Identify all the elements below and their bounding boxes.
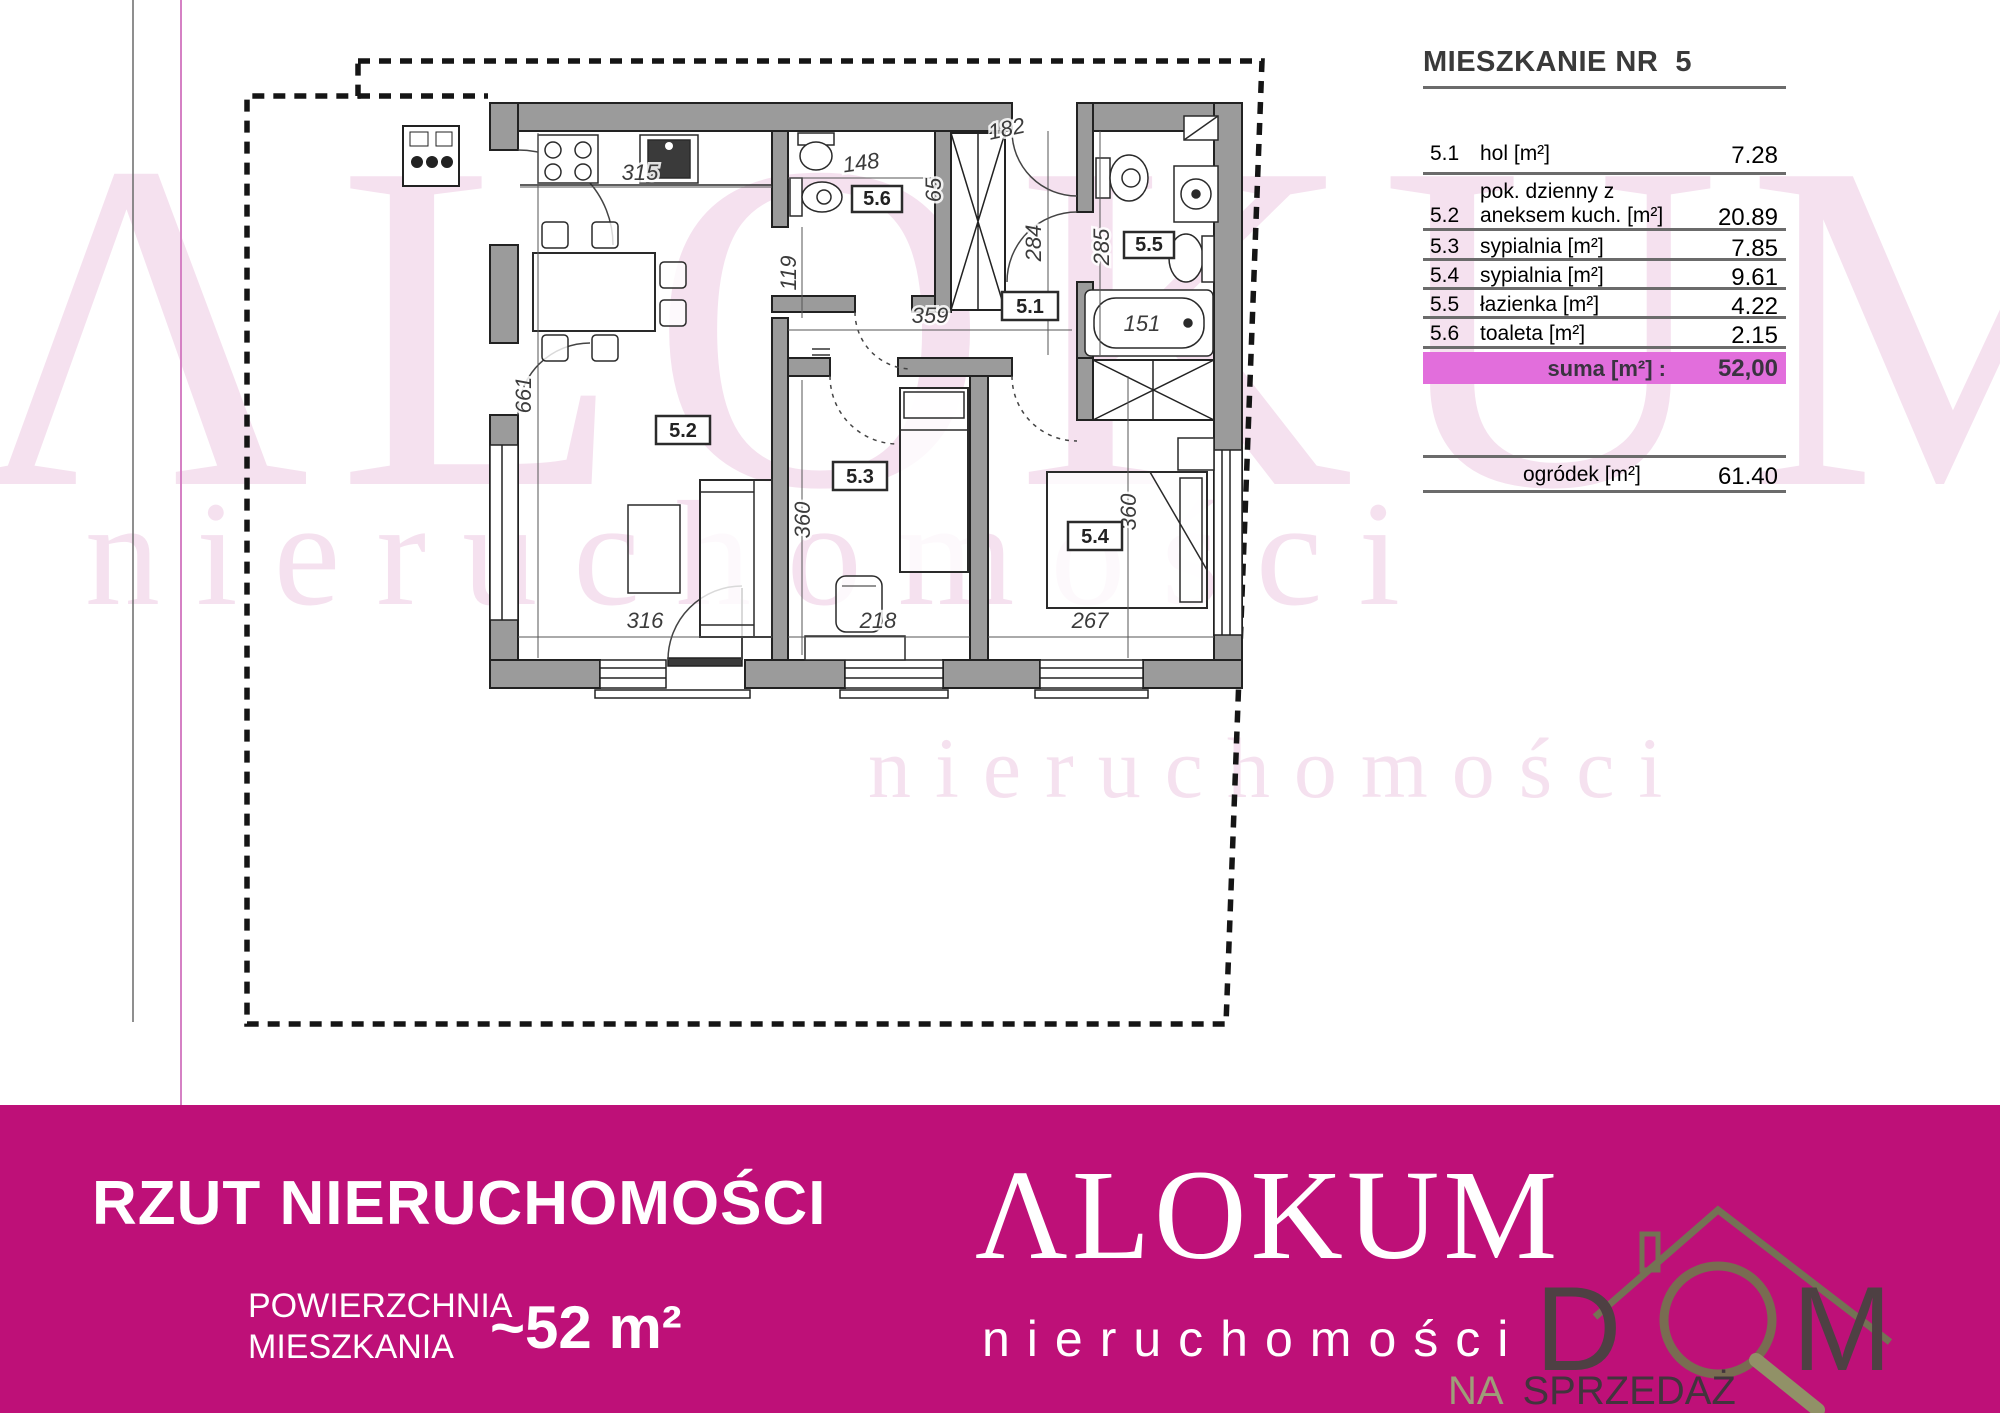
row-number: 5.4 xyxy=(1430,264,1476,288)
row-value: 7.28 xyxy=(1731,142,1778,170)
row-number: 5.6 xyxy=(1430,322,1476,346)
table-row: pok. dzienny z xyxy=(1423,180,1786,206)
room-label-bedroom2: 5.4 xyxy=(1081,526,1110,548)
row-label: toaleta [m²] xyxy=(1480,322,1585,346)
table-row: 5.6 toaleta [m²] 2.15 xyxy=(1423,322,1786,348)
table-row: 5.2 aneksem kuch. [m²] 20.89 xyxy=(1423,204,1786,230)
table-divider xyxy=(1423,258,1786,261)
table-divider xyxy=(1423,172,1786,175)
toilet-icon xyxy=(790,178,802,216)
area-value: ~52 m² xyxy=(490,1293,682,1362)
row-label: hol [m²] xyxy=(1480,142,1550,166)
dim-359: 359 xyxy=(912,303,949,328)
dim-285: 285 xyxy=(1089,228,1114,266)
brand-subtitle: nieruchomości xyxy=(982,1310,1525,1368)
dining-set xyxy=(533,222,686,361)
meter-box xyxy=(403,126,459,186)
row-number: 5.2 xyxy=(1430,204,1476,228)
table-divider xyxy=(1423,346,1786,349)
area-label: POWIERZCHNIA MIESZKANIA xyxy=(248,1286,512,1368)
brand-logo: ΛLOKUM xyxy=(975,1142,1561,1289)
dim-65: 65 xyxy=(921,177,946,202)
row-label: sypialnia [m²] xyxy=(1480,235,1604,259)
garden-value: 61.40 xyxy=(1718,463,1778,491)
wc-fixtures xyxy=(790,133,842,216)
dim-218: 218 xyxy=(859,608,897,633)
svg-text:NA SPRZEDAŻ: NA SPRZEDAŻ xyxy=(1448,1368,1736,1413)
sprzedaz-text: SPRZEDAŻ xyxy=(1522,1368,1735,1413)
dim-315: 315 xyxy=(622,160,659,185)
area-label-line1: POWIERZCHNIA xyxy=(248,1286,512,1327)
na-text: NA xyxy=(1448,1369,1504,1413)
area-label-line2: MIESZKANIA xyxy=(248,1327,512,1368)
unit-table-title: MIESZKANIE NR 5 xyxy=(1423,46,1692,79)
row-number: 5.5 xyxy=(1430,293,1476,317)
dim-151: 151 xyxy=(1124,311,1161,336)
dim-661: 661 xyxy=(511,377,536,414)
dim-360-room53: 360 xyxy=(790,501,815,538)
table-row: 5.1 hol [m²] 7.28 xyxy=(1423,142,1786,168)
row-label: sypialnia [m²] xyxy=(1480,264,1604,288)
suma-row: suma [m²] : 52,00 xyxy=(1423,352,1786,384)
row-label-line1: pok. dzienny z xyxy=(1480,180,1614,204)
room-label-living: 5.2 xyxy=(669,420,697,442)
dim-267: 267 xyxy=(1071,608,1109,633)
garden-label: ogródek [m²] xyxy=(1523,463,1641,487)
dom-letter-m: M xyxy=(1792,1262,1892,1396)
dim-148: 148 xyxy=(841,148,882,178)
room-label-bathroom: 5.5 xyxy=(1135,234,1163,256)
suma-label: suma [m²] : xyxy=(1547,356,1666,382)
page-edge-lines xyxy=(133,0,181,1105)
table-divider xyxy=(1423,455,1786,458)
room-label-bedroom1: 5.3 xyxy=(846,466,874,488)
dim-284: 284 xyxy=(1021,225,1046,263)
banner: D M NA SPRZEDAŻ RZUT NIERUCHOMOŚCI POWIE… xyxy=(0,1105,2000,1413)
table-divider xyxy=(1423,316,1786,319)
room-label-wc: 5.6 xyxy=(863,188,891,210)
flyer-page: ΛLOKUM nieruchomości nieruchomości xyxy=(0,0,2000,1413)
table-divider xyxy=(1423,228,1786,231)
table-divider xyxy=(1423,490,1786,493)
banner-title: RZUT NIERUCHOMOŚCI xyxy=(92,1168,826,1239)
room-label-hol: 5.1 xyxy=(1016,296,1044,318)
garden-row: ogródek [m²] 61.40 xyxy=(1423,463,1786,489)
level-marker xyxy=(812,349,830,355)
row-number: 5.3 xyxy=(1430,235,1476,259)
table-divider xyxy=(1423,287,1786,290)
toilet-icon xyxy=(1096,158,1110,198)
dim-119: 119 xyxy=(776,255,801,290)
row-label-line2: aneksem kuch. [m²] xyxy=(1480,204,1663,228)
row-label: łazienka [m²] xyxy=(1480,293,1599,317)
dim-316: 316 xyxy=(627,608,664,633)
row-number: 5.1 xyxy=(1430,142,1476,166)
suma-value: 52,00 xyxy=(1718,355,1778,383)
sink-icon xyxy=(800,142,832,170)
table-divider xyxy=(1423,86,1786,89)
